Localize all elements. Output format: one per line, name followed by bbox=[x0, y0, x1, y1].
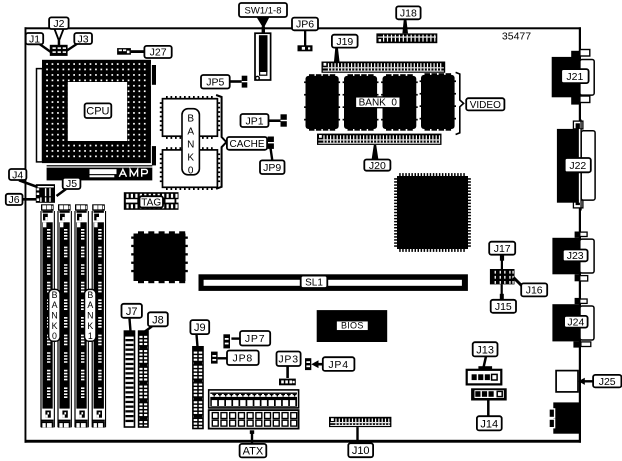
svg-text:J4: J4 bbox=[12, 169, 23, 181]
svg-text:J15: J15 bbox=[495, 301, 512, 313]
svg-text:CACHE: CACHE bbox=[229, 139, 264, 150]
svg-text:A: A bbox=[187, 127, 194, 138]
svg-text:B: B bbox=[187, 114, 194, 125]
svg-text:B: B bbox=[52, 290, 58, 300]
svg-text:VIDEO: VIDEO bbox=[470, 100, 501, 111]
svg-text:TAG: TAG bbox=[141, 197, 161, 208]
svg-text:JP7: JP7 bbox=[245, 333, 266, 345]
svg-text:JP3: JP3 bbox=[278, 354, 299, 366]
svg-text:J21: J21 bbox=[566, 71, 583, 83]
svg-text:J6: J6 bbox=[9, 194, 20, 206]
svg-text:N: N bbox=[87, 311, 93, 321]
svg-text:K: K bbox=[52, 321, 58, 331]
svg-text:35477: 35477 bbox=[502, 31, 531, 43]
svg-text:1: 1 bbox=[88, 331, 93, 341]
svg-text:CPU: CPU bbox=[86, 106, 109, 118]
svg-text:A: A bbox=[52, 300, 58, 310]
svg-text:J13: J13 bbox=[476, 344, 494, 356]
svg-text:J22: J22 bbox=[569, 160, 586, 172]
svg-text:J14: J14 bbox=[480, 418, 498, 430]
svg-text:K: K bbox=[87, 321, 93, 331]
svg-text:N: N bbox=[51, 311, 57, 321]
svg-text:J2: J2 bbox=[53, 18, 64, 30]
svg-text:J24: J24 bbox=[567, 317, 584, 329]
svg-text:J19: J19 bbox=[336, 36, 353, 48]
svg-text:K: K bbox=[187, 153, 194, 164]
svg-text:J17: J17 bbox=[494, 243, 511, 255]
svg-text:J9: J9 bbox=[194, 322, 206, 334]
svg-text:0: 0 bbox=[188, 166, 194, 177]
svg-text:J23: J23 bbox=[567, 250, 584, 262]
svg-text:JP1: JP1 bbox=[245, 115, 263, 127]
svg-text:J1: J1 bbox=[29, 33, 40, 45]
svg-text:J3: J3 bbox=[78, 33, 89, 45]
svg-text:JP6: JP6 bbox=[296, 19, 314, 31]
svg-text:0: 0 bbox=[52, 331, 57, 341]
svg-text:J20: J20 bbox=[369, 160, 386, 172]
svg-text:SW1/1-8: SW1/1-8 bbox=[245, 5, 282, 16]
svg-text:J8: J8 bbox=[152, 314, 164, 326]
svg-text:BANK 0: BANK 0 bbox=[359, 98, 398, 109]
svg-text:J27: J27 bbox=[150, 47, 167, 59]
svg-text:JP4: JP4 bbox=[328, 359, 349, 371]
svg-text:J5: J5 bbox=[66, 178, 77, 190]
svg-text:J10: J10 bbox=[352, 445, 370, 457]
svg-text:ATX: ATX bbox=[243, 446, 264, 458]
svg-text:J7: J7 bbox=[126, 306, 138, 318]
svg-text:JP5: JP5 bbox=[206, 77, 224, 89]
svg-text:J25: J25 bbox=[599, 376, 616, 388]
svg-text:JP8: JP8 bbox=[233, 353, 254, 365]
svg-text:SL1: SL1 bbox=[305, 277, 323, 288]
svg-text:J16: J16 bbox=[526, 285, 543, 297]
svg-text:BIOS: BIOS bbox=[341, 321, 364, 331]
svg-text:A: A bbox=[87, 300, 93, 310]
svg-text:JP9: JP9 bbox=[263, 162, 281, 174]
svg-text:J18: J18 bbox=[400, 8, 417, 20]
svg-text:N: N bbox=[187, 140, 194, 151]
svg-text:B: B bbox=[87, 290, 93, 300]
